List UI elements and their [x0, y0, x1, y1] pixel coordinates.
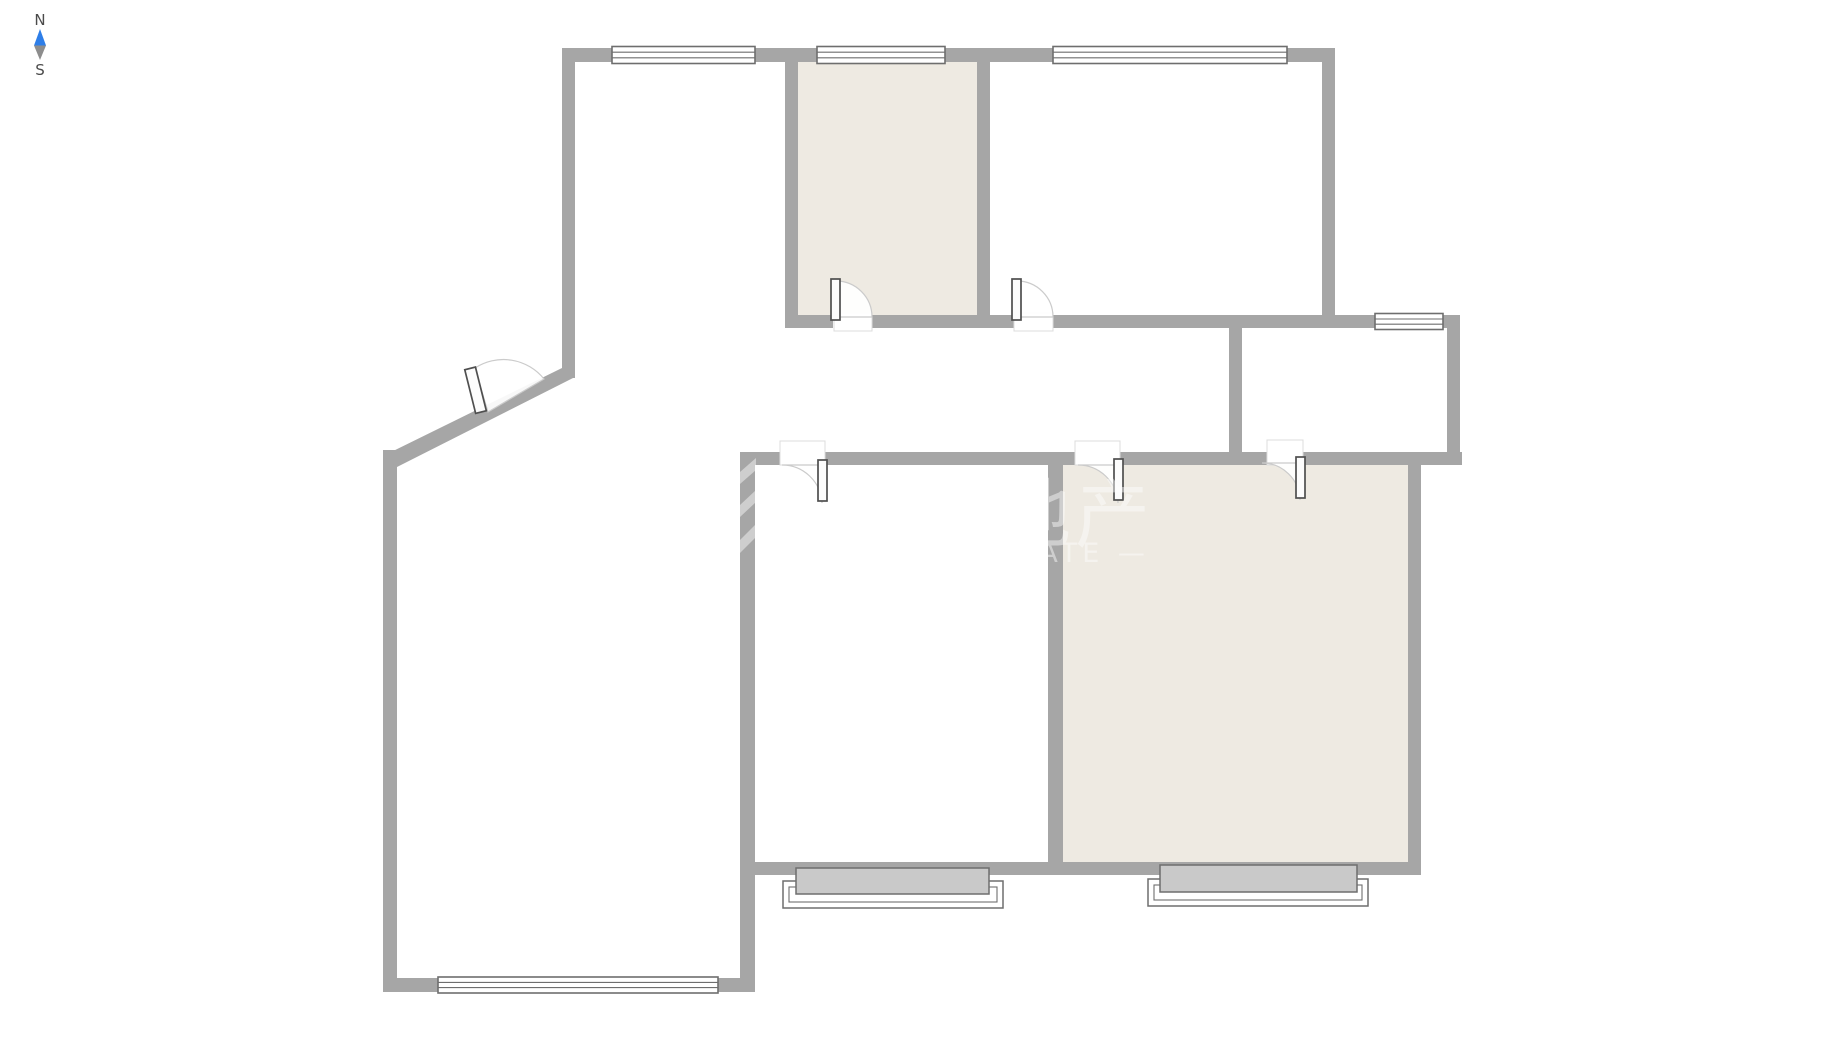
- floorplan-page: N S 地产 — ESTATE —: [0, 0, 1847, 1039]
- wall-segment: [1229, 328, 1242, 452]
- window: [612, 47, 755, 64]
- window: [1053, 47, 1287, 64]
- compass-needle-north-icon: [34, 29, 46, 46]
- wall-segment: [977, 62, 990, 315]
- watermark-latin-text: — ESTATE —: [930, 538, 1150, 569]
- wall-segment: [383, 450, 397, 992]
- bay-window: [783, 868, 1003, 908]
- wall-segment: [872, 315, 1015, 328]
- door: [780, 441, 827, 503]
- bay-window: [1148, 865, 1368, 906]
- door: [1012, 279, 1053, 331]
- wall-segment: [1120, 452, 1267, 465]
- compass-needle-south-icon: [34, 46, 46, 61]
- accent-room-top-middle: [798, 62, 978, 315]
- wall-segment: [1447, 315, 1460, 465]
- window: [1375, 314, 1443, 330]
- wall-segment: [785, 62, 798, 328]
- wall-segment: [1322, 62, 1335, 315]
- wall-segment: [1408, 452, 1421, 875]
- compass-north-label: N: [34, 11, 45, 29]
- floorplan-canvas: N S 地产 — ESTATE —: [0, 0, 1847, 1039]
- wall-segment: [1303, 452, 1462, 465]
- watermark: 地产 — ESTATE —: [740, 458, 1154, 569]
- window: [817, 47, 945, 64]
- compass: N S: [34, 11, 46, 79]
- compass-south-label: S: [35, 61, 45, 79]
- wall-segment: [825, 452, 1075, 465]
- wall-segment: [562, 48, 575, 378]
- window: [438, 977, 718, 993]
- wall-segment: [785, 315, 833, 328]
